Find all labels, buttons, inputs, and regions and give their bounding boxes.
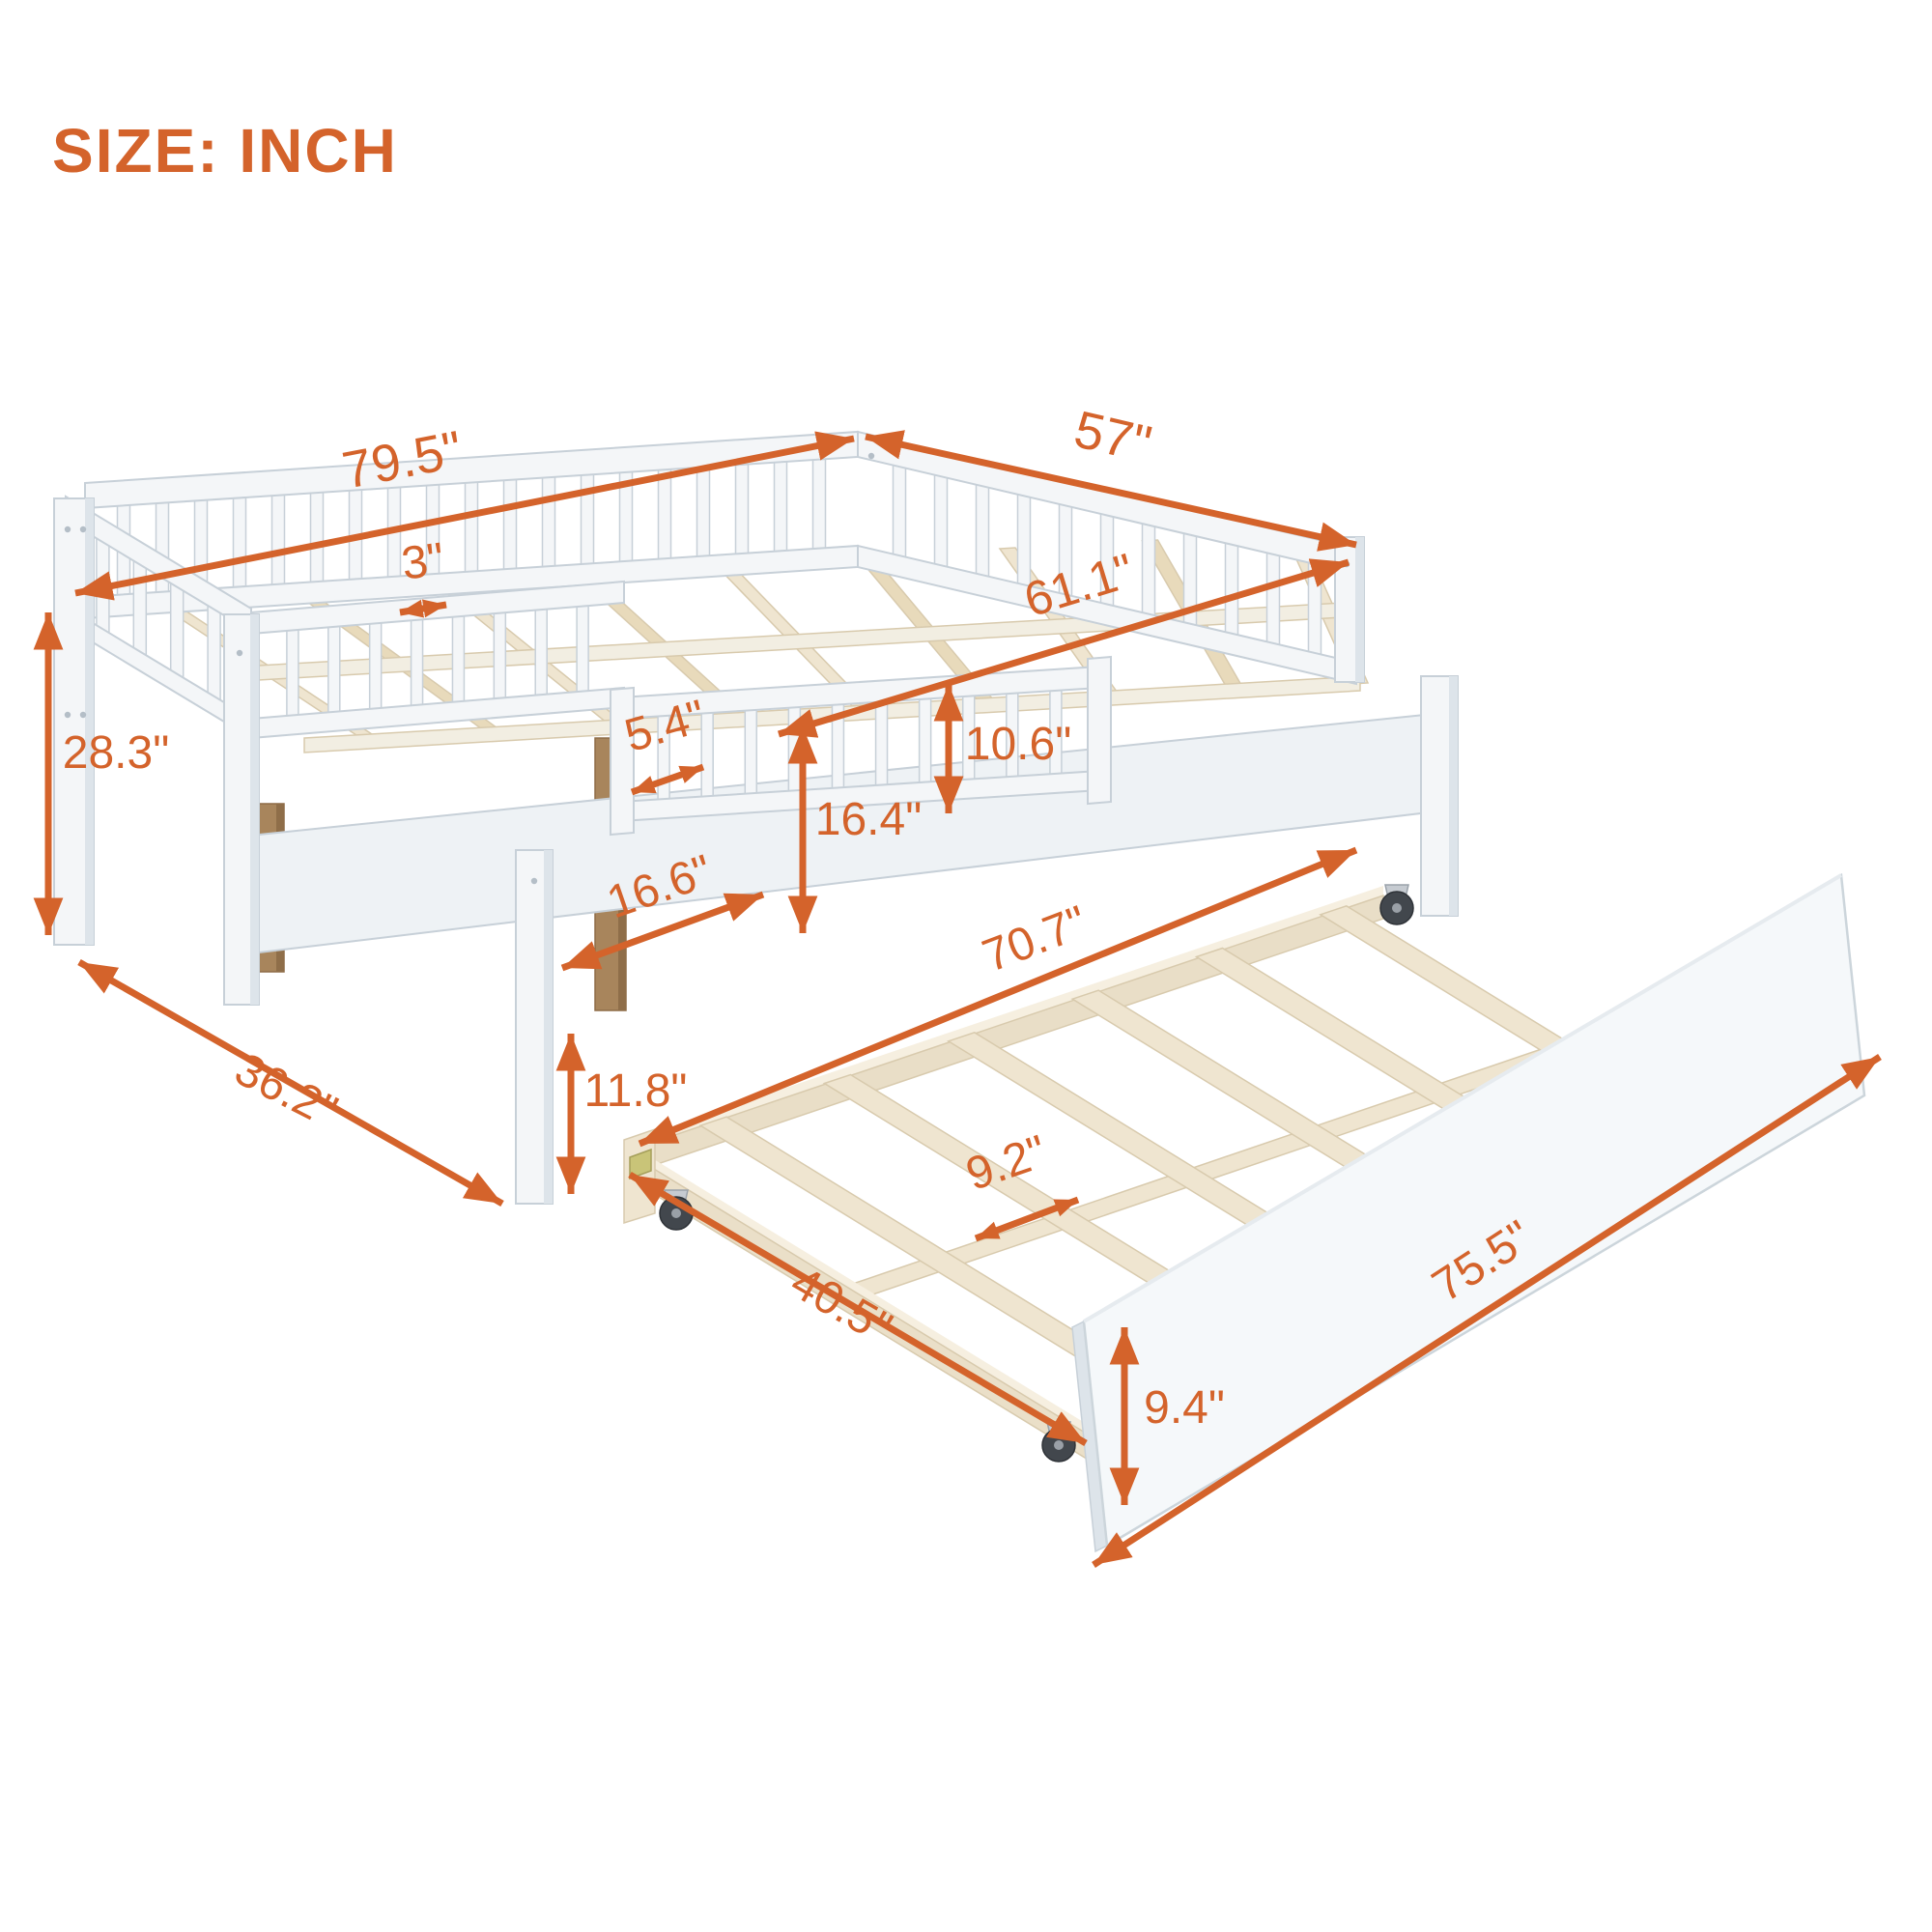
dimension-label: 79.5" [338, 420, 467, 500]
dimension-frame-height: 16.4" [803, 726, 922, 933]
dimension-label: 11.8" [584, 1065, 688, 1117]
trundle-illustration [624, 875, 1864, 1551]
dimension-label: 9.4" [1144, 1382, 1225, 1434]
dimension-label: 36.2" [227, 1044, 345, 1138]
dimension-label: 70.7" [976, 896, 1094, 982]
dimension-bed-end-width: 36.2" [79, 962, 502, 1204]
dimension-label: 16.4" [815, 794, 922, 845]
dimension-label: 9.2" [960, 1126, 1053, 1201]
dimension-label: 57" [1069, 400, 1157, 473]
dimension-label: 40.5" [782, 1257, 900, 1354]
page-title: SIZE: INCH [52, 116, 398, 185]
dimension-label: 10.6" [965, 719, 1071, 770]
dimension-label: 28.3" [63, 727, 169, 779]
diagram-canvas: SIZE: INCH 79.5"57"61.1"3"5.4"10.6"16.4"… [0, 0, 1932, 1932]
dimension-label: 3" [399, 533, 448, 590]
bed-dimension-diagram: SIZE: INCH 79.5"57"61.1"3"5.4"10.6"16.4"… [0, 0, 1932, 1932]
